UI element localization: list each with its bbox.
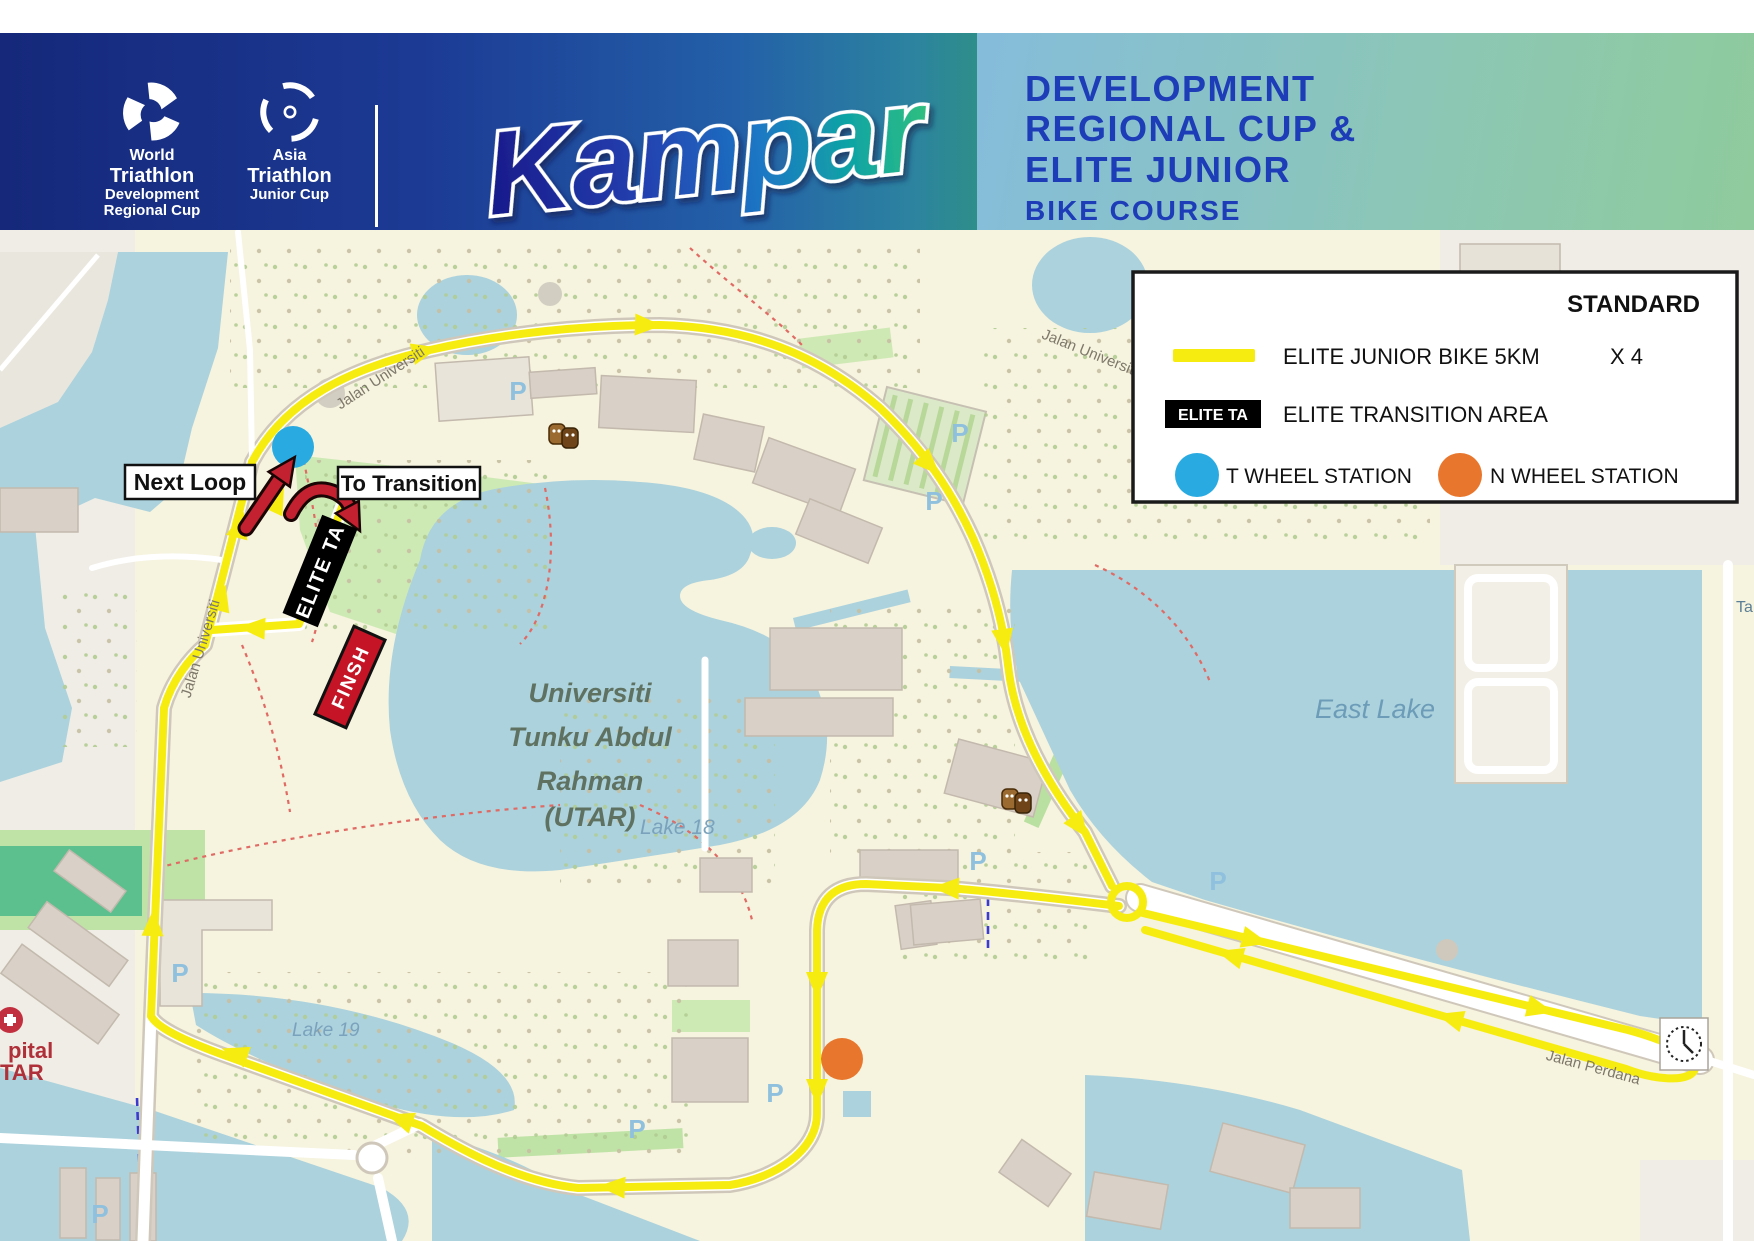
- legend-route-label: ELITE JUNIOR BIKE 5KM: [1283, 344, 1540, 369]
- course-map-svg: P P P P P P P P P pital TAR Jalan Univer…: [0, 230, 1754, 1241]
- roundabout-west: [357, 1143, 387, 1173]
- world-logo-line: Regional Cup: [72, 203, 232, 220]
- asia-logo-line: Junior Cup: [222, 187, 357, 204]
- world-logo-line: Triathlon: [72, 165, 232, 187]
- n-wheel-station-marker: [821, 1038, 863, 1080]
- legend-route-swatch: [1173, 349, 1255, 362]
- utar-line: Tunku Abdul: [508, 722, 672, 752]
- world-logo-line: World: [72, 147, 232, 165]
- legend-heading: STANDARD: [1567, 291, 1700, 318]
- to-transition-text: To Transition: [341, 471, 477, 496]
- legend-ta-label: ELITE TRANSITION AREA: [1283, 402, 1548, 427]
- asia-logo-line: Asia: [222, 147, 357, 165]
- utar-line: Universiti: [528, 678, 652, 708]
- course-title-panel: DEVELOPMENT REGIONAL CUP & ELITE JUNIOR …: [977, 33, 1754, 230]
- hospital-text-2: TAR: [0, 1060, 44, 1085]
- world-logo-line: Development: [72, 187, 232, 204]
- legend-route-laps: X 4: [1610, 344, 1643, 369]
- legend-n-wheel-icon: [1438, 453, 1482, 497]
- east-lake-label: East Lake: [1315, 694, 1435, 724]
- kampar-script-text: Kampar: [479, 67, 936, 232]
- title-line-2: REGIONAL CUP &: [1025, 109, 1754, 149]
- legend-ta-badge-text: ELITE TA: [1178, 407, 1248, 424]
- course-map: P P P P P P P P P pital TAR Jalan Univer…: [0, 230, 1754, 1241]
- bike-course-poster: World Triathlon Development Regional Cup…: [0, 0, 1754, 1241]
- world-triathlon-emblem-icon: [121, 81, 183, 143]
- turnaround-clock-icon: [1660, 1018, 1708, 1070]
- parking-icon: P: [925, 486, 942, 516]
- lake18-label: Lake 18: [640, 816, 715, 839]
- parking-icon: P: [969, 846, 986, 876]
- to-transition-callout: To Transition: [338, 467, 480, 499]
- asia-triathlon-logo: Asia Triathlon Junior Cup: [222, 81, 357, 203]
- utar-line: Rahman: [537, 766, 644, 796]
- street-label-cut: Ta: [1736, 599, 1753, 616]
- parking-garage: [1455, 565, 1567, 783]
- event-banner: World Triathlon Development Regional Cup…: [0, 33, 1754, 230]
- legend-n-wheel-label: N WHEEL STATION: [1490, 465, 1679, 488]
- parking-icon: P: [951, 418, 968, 448]
- title-subtitle: BIKE COURSE: [1025, 195, 1754, 227]
- lake19-label: Lake 19: [292, 1020, 360, 1041]
- parking-icon: P: [1209, 866, 1226, 896]
- parking-icon: P: [509, 376, 526, 406]
- theatre-masks-icon: [1002, 789, 1031, 813]
- parking-icon: P: [766, 1078, 783, 1108]
- parking-icon: P: [91, 1199, 108, 1229]
- title-line-3: ELITE JUNIOR: [1025, 150, 1754, 190]
- legend-t-wheel-label: T WHEEL STATION: [1226, 465, 1412, 488]
- asia-logo-line: Triathlon: [222, 165, 357, 187]
- top-white-strip: [0, 0, 1754, 33]
- legend: STANDARD ELITE JUNIOR BIKE 5KM X 4 ELITE…: [1133, 272, 1737, 502]
- asia-triathlon-emblem-icon: [259, 81, 321, 143]
- next-loop-text: Next Loop: [134, 469, 246, 495]
- parking-icon: P: [171, 958, 188, 988]
- legend-t-wheel-icon: [1175, 453, 1219, 497]
- parking-icon: P: [628, 1114, 645, 1144]
- theatre-masks-icon: [549, 424, 578, 448]
- kampar-wordmark: Kampar: [368, 67, 1058, 232]
- next-loop-callout: Next Loop: [125, 465, 255, 499]
- utar-line: (UTAR): [545, 802, 636, 832]
- world-triathlon-logo: World Triathlon Development Regional Cup: [72, 81, 232, 220]
- title-line-1: DEVELOPMENT: [1025, 69, 1754, 109]
